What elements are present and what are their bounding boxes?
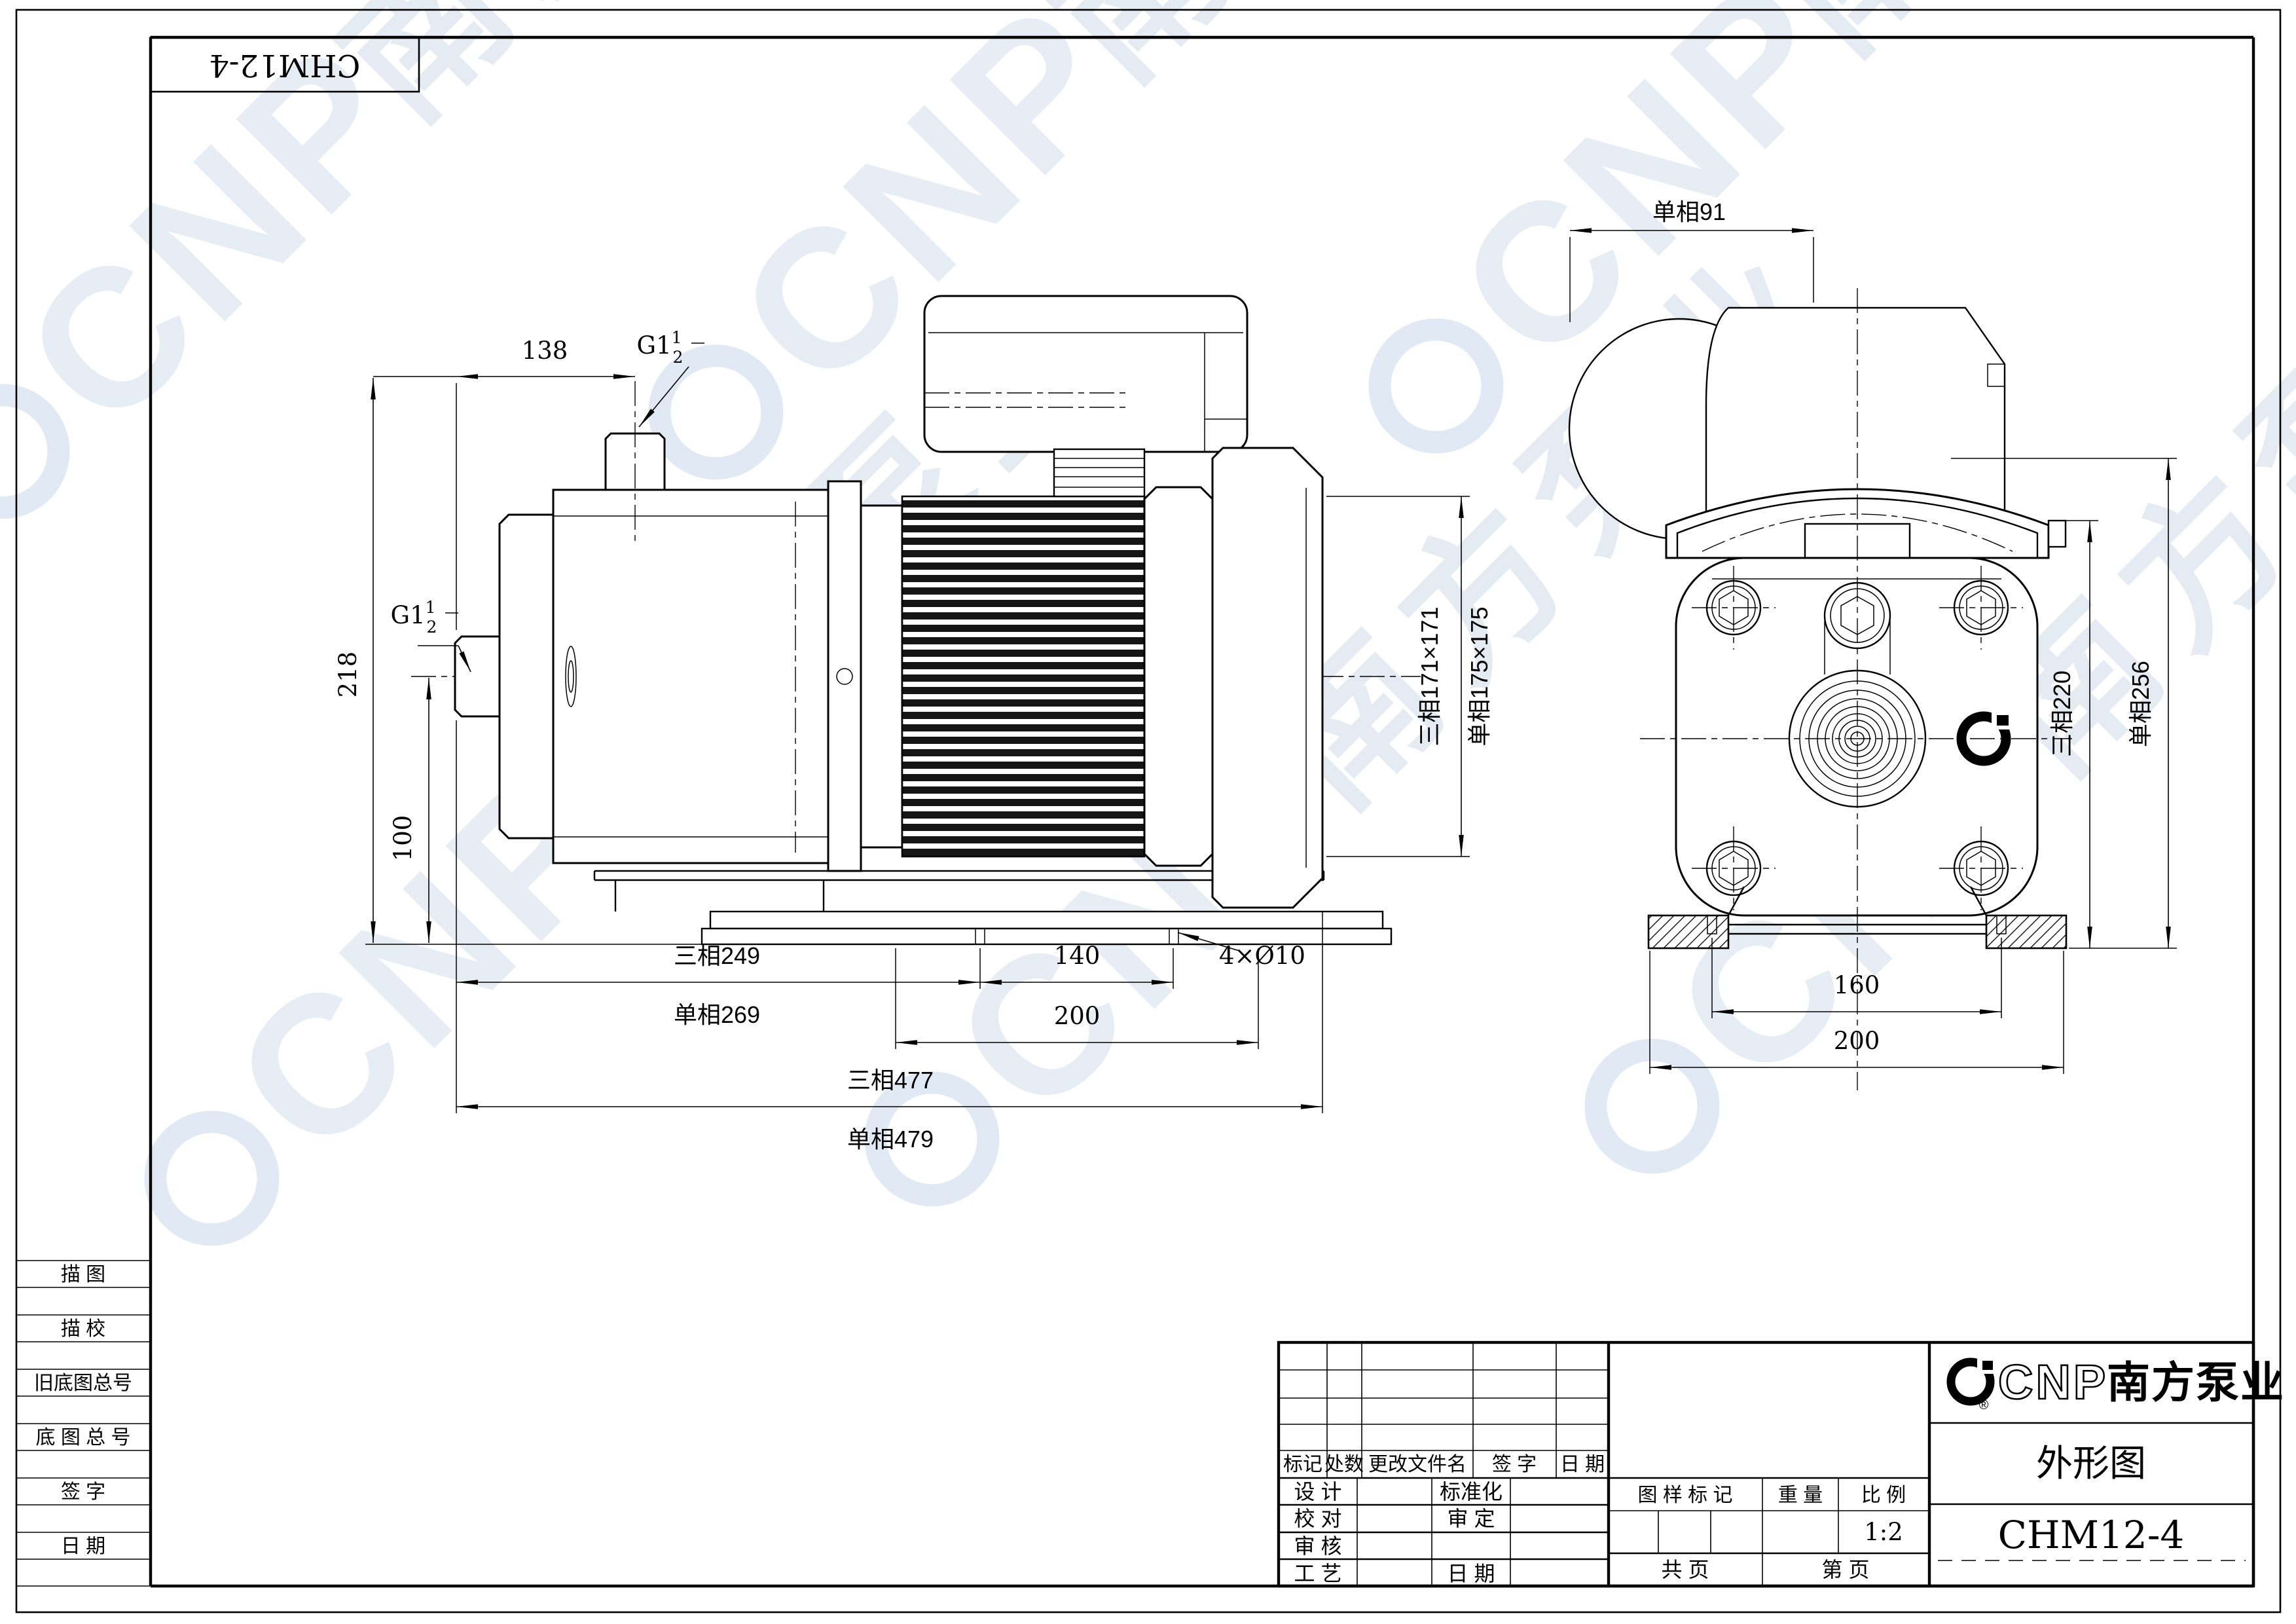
dim-477: 三相477 (847, 1067, 934, 1094)
title-block: 标记 处数 更改文件名 签 字 日 期 设 计 标准化 校 对 审 定 审 核 … (1279, 1342, 2285, 1586)
fold-label-text: CHM12-4 (210, 47, 361, 83)
rev-col-count: 处数 (1324, 1454, 1364, 1475)
dim-249: 三相249 (674, 942, 760, 969)
cnp-logo-icon: ® (1951, 1357, 1994, 1412)
pump-head-cap (500, 515, 553, 838)
revision-table: 标记 处数 更改文件名 签 字 日 期 (1279, 1342, 1929, 1478)
cell-total-pages: 共 页 (1662, 1558, 1709, 1581)
margin-row-master-no: 底 图 总 号 (35, 1427, 130, 1449)
rev-col-mark: 标记 (1283, 1454, 1322, 1475)
cell-approve: 审 定 (1448, 1507, 1495, 1530)
seat-flange (828, 481, 861, 871)
dim-140: 140 (1054, 942, 1101, 970)
dim-220: 三相220 (2049, 671, 2075, 757)
stamp-table: 图 样 标 记 重 量 比 例 1:2 共 页 第 页 (1609, 1478, 1929, 1586)
margin-row-signature: 签 字 (61, 1481, 105, 1503)
dim-138: 138 (522, 337, 568, 365)
rev-col-date: 日 期 (1560, 1454, 1605, 1475)
dim-91: 单相91 (1652, 198, 1726, 225)
cell-page-no: 第 页 (1822, 1558, 1870, 1581)
scale-value: 1:2 (1864, 1518, 1903, 1546)
dim-200-side: 200 (1054, 1002, 1101, 1030)
dim-479: 单相479 (847, 1126, 934, 1153)
motor-top-vents (1054, 449, 1144, 496)
rev-col-filename: 更改文件名 (1368, 1454, 1467, 1475)
motor-side (828, 448, 1322, 908)
dim-218: 218 (334, 652, 362, 698)
cell-stamp-mark: 图 样 标 记 (1637, 1485, 1732, 1506)
dim-171x171: 三相171×171 (1416, 606, 1443, 746)
dim-175x175: 单相175×175 (1466, 606, 1493, 746)
doc-type-text: 外形图 (2036, 1443, 2146, 1484)
margin-row-old-master-no: 旧底图总号 (34, 1373, 132, 1394)
dim-4xd10: 4×Ø10 (1219, 942, 1305, 970)
dim-200-front: 200 (1834, 1027, 1880, 1055)
approval-table: 设 计 标准化 校 对 审 定 审 核 工 艺 日 期 (1279, 1478, 1609, 1586)
cell-date: 日 期 (1448, 1562, 1495, 1585)
pump-barrel-side (455, 381, 828, 863)
terminal-box-side (924, 296, 1247, 452)
motor-end-bracket (1144, 487, 1212, 866)
company-name-text: 南方泵业 (2107, 1358, 2285, 1407)
svg-text:G112: G112 (391, 598, 437, 637)
dim-256: 单相256 (2127, 661, 2154, 747)
cell-proofread: 校 对 (1294, 1507, 1342, 1530)
margin-row-date: 日 期 (61, 1536, 105, 1557)
svg-text:G112: G112 (637, 328, 683, 367)
dim-160: 160 (1834, 971, 1880, 999)
left-margin-table: 描 图 描 校 旧底图总号 底 图 总 号 签 字 日 期 (16, 1261, 151, 1586)
registered-mark: ® (1979, 1398, 1989, 1412)
dim-100: 100 (389, 815, 417, 862)
rev-col-sign: 签 字 (1492, 1454, 1537, 1475)
motor-cooling-fins (902, 496, 1144, 857)
cell-standardize: 标准化 (1440, 1480, 1503, 1504)
company-block: ® CNP 南方泵业 外形图 CHM12-4 (1929, 1355, 2285, 1560)
drawing-canvas: CNP 南方泵业 CNP 南方泵业 CNP 南方泵业 CNP 南方泵业 CNP … (0, 0, 2296, 1624)
cell-design: 设 计 (1294, 1480, 1342, 1504)
drawing-sheet: CNP 南方泵业 CNP 南方泵业 CNP 南方泵业 CNP 南方泵业 CNP … (0, 0, 2296, 1624)
company-cnp-text: CNP (1998, 1355, 2108, 1409)
margin-row-tracing: 描 图 (61, 1264, 105, 1285)
cell-scale: 比 例 (1861, 1485, 1906, 1506)
model-text: CHM12-4 (1998, 1513, 2185, 1557)
margin-row-trace-check: 描 校 (61, 1318, 105, 1340)
dim-269: 单相269 (674, 1001, 760, 1028)
cell-review: 审 核 (1294, 1534, 1342, 1558)
suction-port-stub (455, 637, 500, 716)
cell-weight: 重 量 (1778, 1485, 1823, 1506)
cell-process: 工 艺 (1294, 1562, 1342, 1585)
